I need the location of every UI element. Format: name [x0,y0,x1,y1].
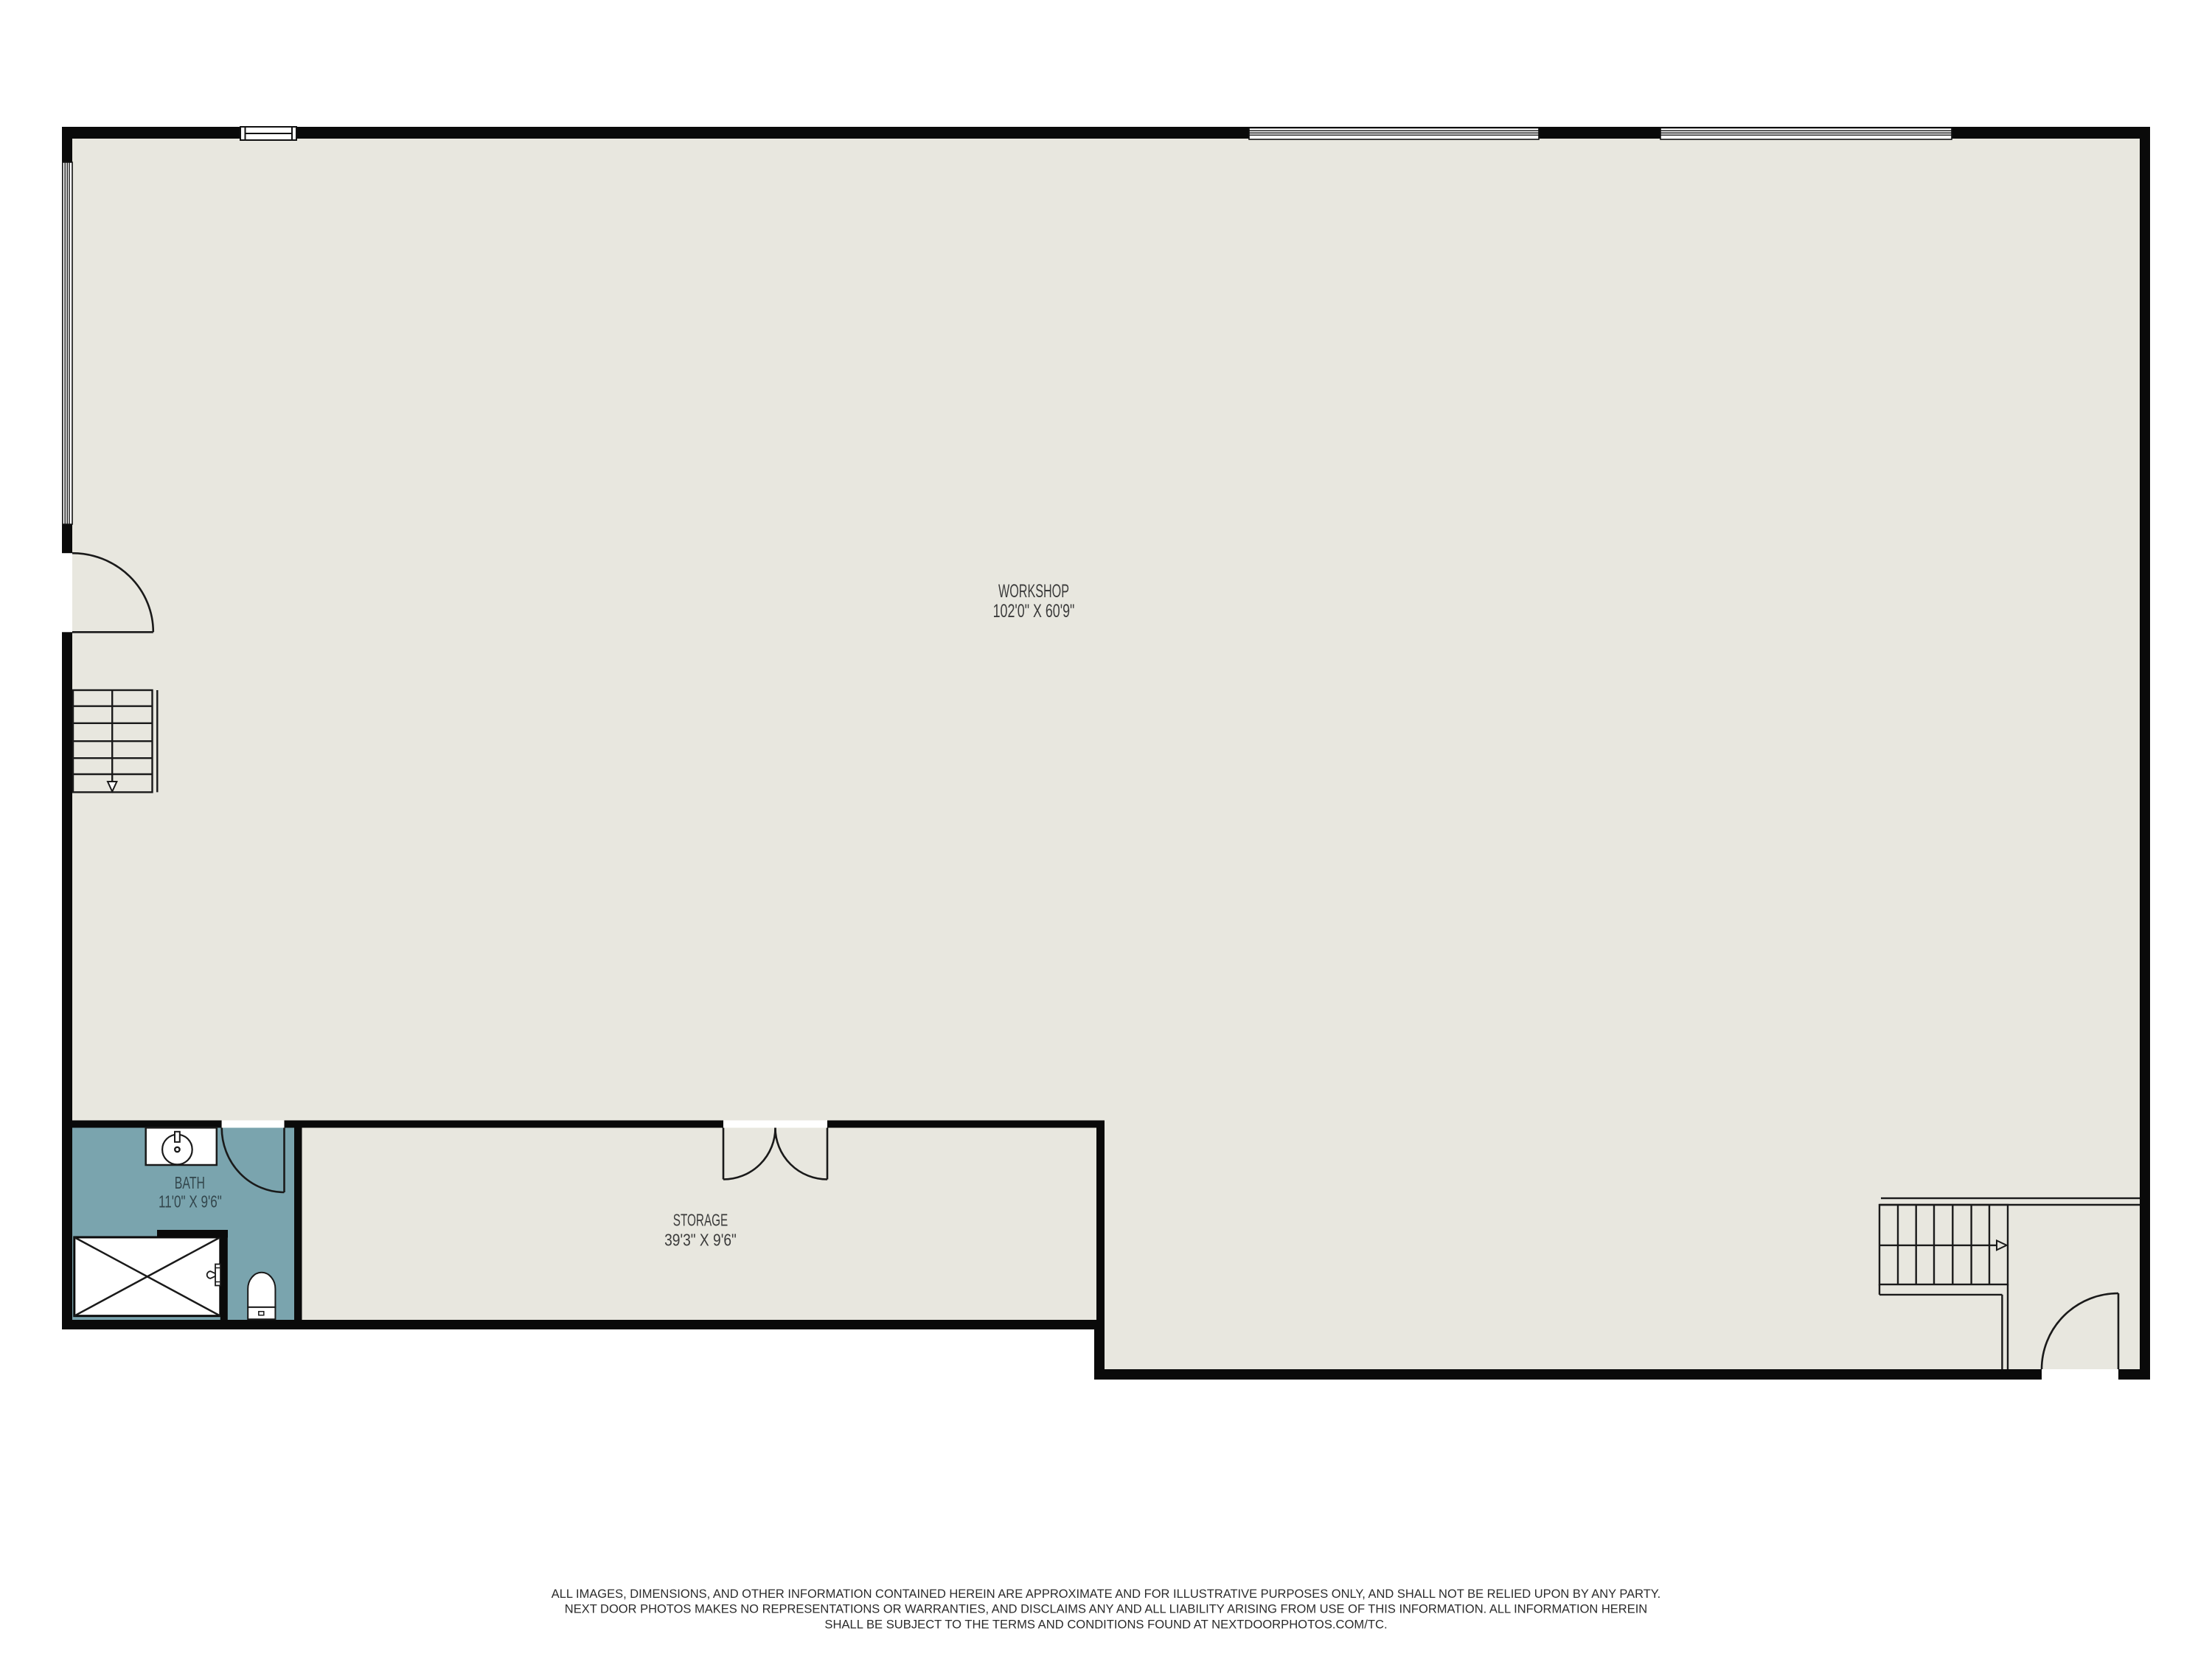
svg-text:ALL IMAGES, DIMENSIONS, AND OT: ALL IMAGES, DIMENSIONS, AND OTHER INFORM… [552,1587,1661,1601]
svg-text:WORKSHOP: WORKSHOP [998,581,1069,602]
svg-text:102'0" X 60'9": 102'0" X 60'9" [993,601,1075,622]
svg-text:11'0" X 9'6": 11'0" X 9'6" [159,1192,222,1211]
svg-text:STORAGE: STORAGE [673,1211,728,1230]
svg-text:NEXT DOOR PHOTOS MAKES NO REPR: NEXT DOOR PHOTOS MAKES NO REPRESENTATION… [565,1602,1647,1615]
svg-text:SHALL BE SUBJECT TO THE TERMS: SHALL BE SUBJECT TO THE TERMS AND CONDIT… [824,1618,1387,1631]
svg-text:BATH: BATH [175,1173,205,1192]
svg-text:39'3" X 9'6": 39'3" X 9'6" [664,1230,737,1249]
